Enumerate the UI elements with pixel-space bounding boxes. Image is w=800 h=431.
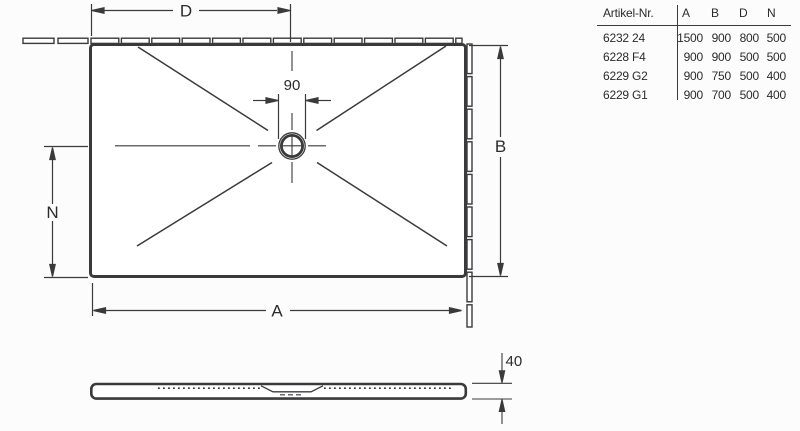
article-spec-table: Artikel-Nr. A B D N 6232 24 1500 900 800… bbox=[596, 4, 792, 100]
article-number: 6228 F4 bbox=[596, 50, 677, 64]
dim-d-label: D bbox=[180, 2, 192, 21]
value-n: 500 bbox=[762, 50, 789, 64]
tray-outline bbox=[91, 45, 466, 277]
technical-drawing-page: D B N bbox=[0, 0, 800, 431]
header-col-b: B bbox=[706, 6, 734, 20]
table-header-row: Artikel-Nr. A B D N bbox=[596, 4, 792, 22]
table-row: 6229 G2 900 750 500 400 bbox=[596, 66, 792, 85]
article-number: 6229 G1 bbox=[596, 88, 677, 102]
value-d: 500 bbox=[734, 69, 762, 83]
table-header-divider bbox=[597, 25, 791, 26]
value-a: 900 bbox=[677, 50, 706, 64]
dim-n-label: N bbox=[46, 203, 58, 222]
header-artikel-nr: Artikel-Nr. bbox=[596, 6, 677, 20]
value-b: 700 bbox=[706, 88, 734, 102]
value-a: 900 bbox=[677, 88, 706, 102]
table-row: 6229 G1 900 700 500 400 bbox=[596, 85, 792, 104]
value-d: 500 bbox=[734, 50, 762, 64]
dim-b-label: B bbox=[495, 137, 506, 156]
value-n: 400 bbox=[762, 69, 789, 83]
article-number: 6229 G2 bbox=[596, 69, 677, 83]
header-col-d: D bbox=[734, 6, 762, 20]
value-n: 400 bbox=[762, 88, 789, 102]
value-n: 500 bbox=[762, 31, 789, 45]
plan-view: D B N bbox=[44, 2, 508, 321]
value-d: 500 bbox=[734, 88, 762, 102]
value-b: 900 bbox=[706, 31, 734, 45]
header-col-n: N bbox=[762, 6, 789, 20]
shower-tray-drawing: D B N bbox=[0, 0, 560, 431]
dimension-b bbox=[469, 46, 508, 277]
dim-40-label: 40 bbox=[506, 353, 523, 370]
article-number: 6232 24 bbox=[596, 31, 677, 45]
table-row: 6228 F4 900 900 500 500 bbox=[596, 47, 792, 66]
dim-90-label: 90 bbox=[284, 77, 301, 94]
dim-a-label: A bbox=[271, 302, 283, 321]
table-row: 6232 24 1500 900 800 500 bbox=[596, 28, 792, 47]
value-a: 1500 bbox=[677, 31, 706, 45]
value-a: 900 bbox=[677, 69, 706, 83]
header-col-a: A bbox=[677, 6, 706, 20]
value-b: 900 bbox=[706, 50, 734, 64]
value-d: 800 bbox=[734, 31, 762, 45]
side-view: 40 bbox=[91, 353, 522, 424]
value-b: 750 bbox=[706, 69, 734, 83]
